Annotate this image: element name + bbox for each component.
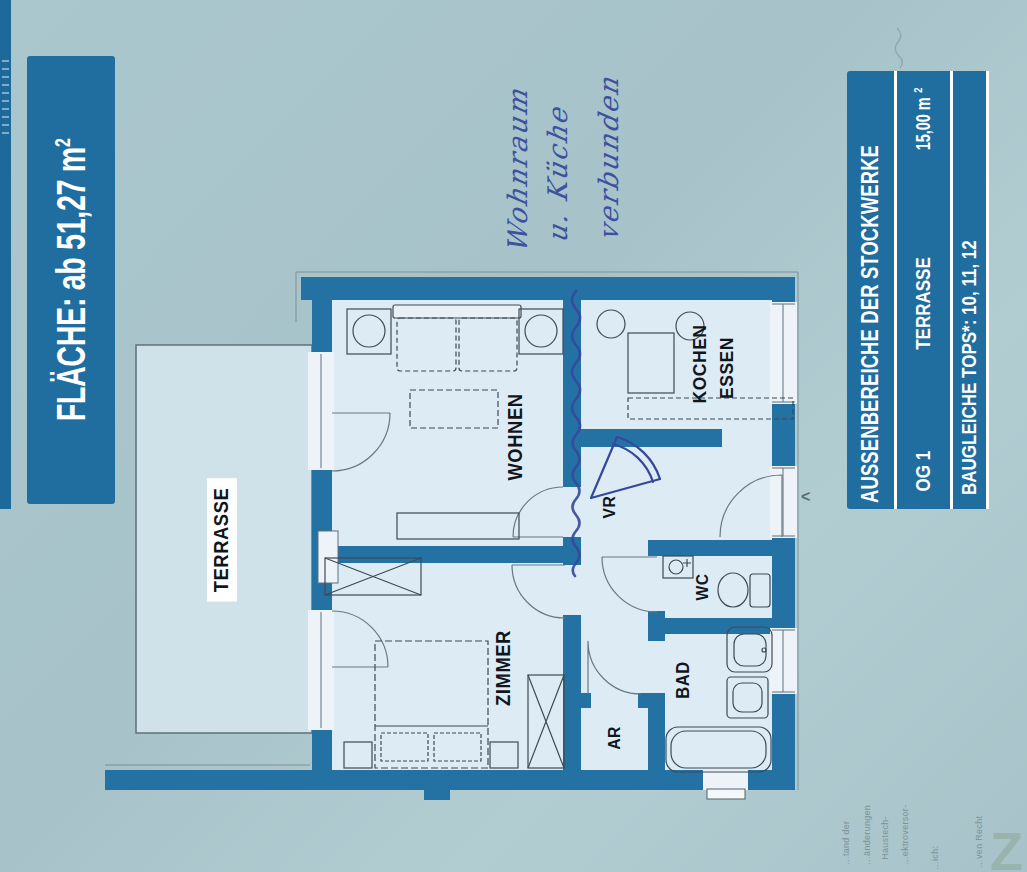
label-essen: ESSEN [716,337,738,399]
label-bad: BAD [673,661,694,699]
space-type: TERRASSE [912,258,935,351]
superscript-2: 2 [912,87,924,92]
label-zimmer: ZIMMER [492,630,515,706]
storeys-banner-title-row: AUSSENBEREICHE DER STOCKWERKE [847,71,897,509]
label-vr: VR [600,496,620,519]
storeys-banner-footer-row: BAUGLEICHE TOPS*: 10, 11, 12 [953,71,989,509]
storeys-banner-title: AUSSENBEREICHE DER STOCKWERKE [857,145,884,503]
label-wc: WC [693,573,713,600]
handwriting-line-3: verbunden [593,73,624,243]
label-terrasse: TERRASSE [207,478,237,601]
watermark-letter: Z [990,820,1023,872]
storeys-banner-data-row: OG 1 TERRASSE 15,00 m2 [897,71,954,509]
floor-value: OG 1 [912,451,935,492]
fine-print-line: …ich: [930,846,940,871]
label-ar: AR [605,726,625,750]
fine-print-line: …ven Recht [974,816,984,869]
scanned-floorplan-page: FLÄCHE: ab 51,27 m2 [0,0,1027,872]
faint-pencil-mark [895,28,902,68]
space-area: 15,00 m2 [912,87,935,155]
fine-print-line: …änderungen [862,805,872,865]
storeys-banner: AUSSENBEREICHE DER STOCKWERKE OG 1 TERRA… [847,71,989,509]
fine-print-line: …tand der [841,821,851,866]
chevron-mark: < [801,488,810,506]
handwriting-line-1: Wohnraum [502,85,533,255]
storeys-banner-content: AUSSENBEREICHE DER STOCKWERKE OG 1 TERRA… [847,71,989,509]
handwriting-line-2: u. Küche [542,103,573,244]
label-wohnen: WOHNEN [504,393,527,480]
fine-print-line: …ektroversor- [900,805,910,866]
fine-print-line: Haustech- [880,816,890,860]
label-kochen: KOCHEN [689,324,711,403]
entrance-door-leaf [707,789,745,799]
identical-tops-note: BAUGLEICHE TOPS*: 10, 11, 12 [958,240,981,495]
